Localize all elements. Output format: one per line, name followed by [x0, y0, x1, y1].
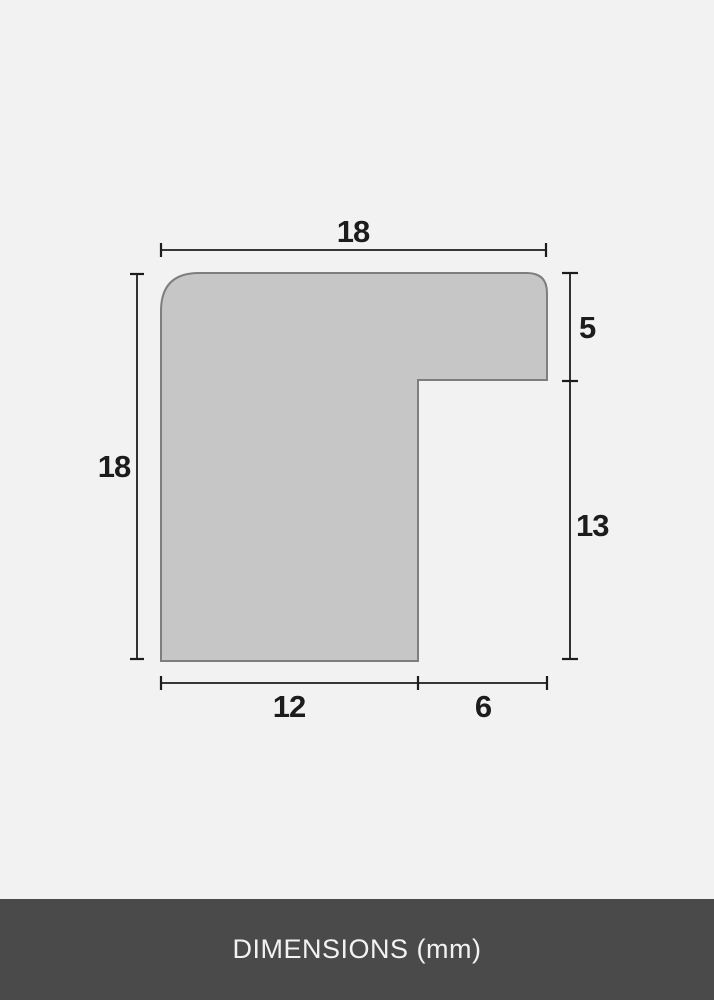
- dimension-right-side: 5 13: [562, 273, 609, 659]
- diagram-canvas: 18 18 5 13: [0, 0, 714, 899]
- dimension-left-height: 18: [98, 274, 144, 659]
- footer-bar: DIMENSIONS (mm): [0, 899, 714, 1000]
- frame-profile-shape: [161, 273, 547, 661]
- dim-label-top-width: 18: [337, 214, 370, 249]
- dimension-bottom: 12 6: [161, 676, 547, 724]
- page: 18 18 5 13: [0, 0, 714, 1000]
- dimension-top-width: 18: [161, 214, 546, 257]
- dim-label-left-height: 18: [98, 449, 131, 484]
- dim-label-right-lower: 13: [576, 508, 609, 543]
- dim-label-bottom-inner: 12: [273, 689, 305, 724]
- footer-label: DIMENSIONS (mm): [233, 934, 482, 965]
- dim-label-right-upper: 5: [579, 310, 596, 345]
- dim-label-bottom-rabbet: 6: [475, 689, 492, 724]
- profile-dimension-drawing: 18 18 5 13: [0, 0, 714, 899]
